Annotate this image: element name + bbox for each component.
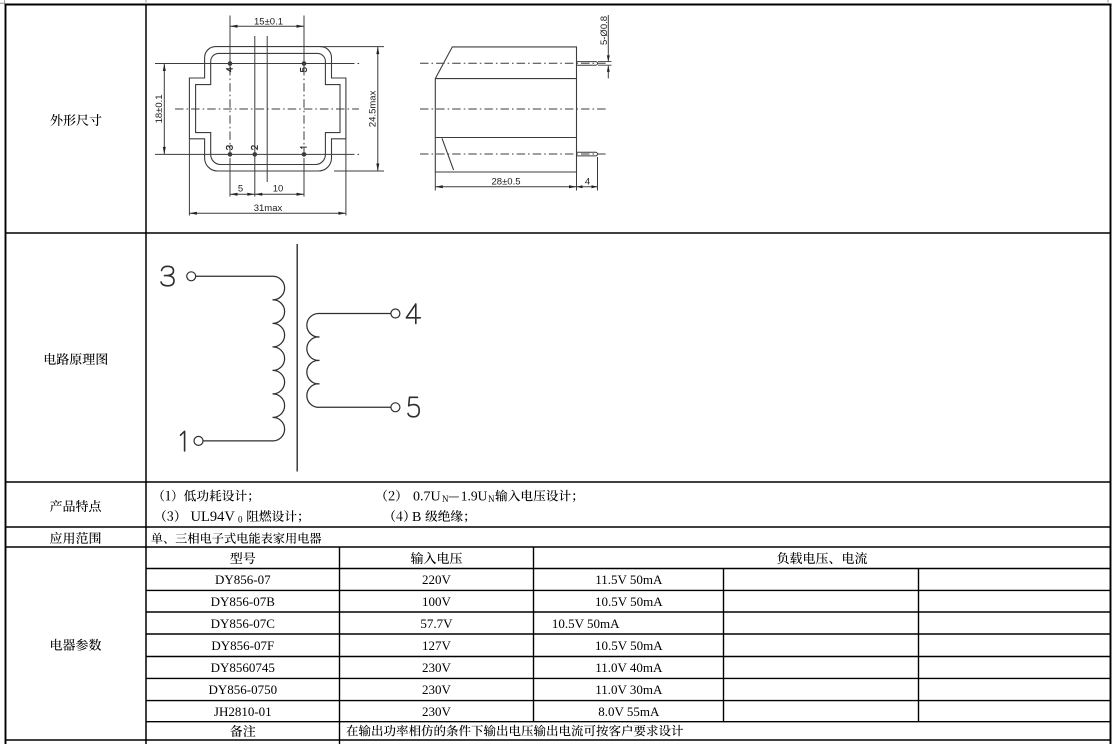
svg-text:127V: 127V xyxy=(422,638,452,653)
svg-text:220V: 220V xyxy=(422,572,452,587)
svg-text:31max: 31max xyxy=(254,203,283,214)
svg-text:DY856-07F: DY856-07F xyxy=(211,638,274,653)
svg-text:DY856-07: DY856-07 xyxy=(215,572,271,587)
svg-text:1.9U: 1.9U xyxy=(461,488,488,503)
svg-text:100V: 100V xyxy=(422,594,452,609)
svg-text:4: 4 xyxy=(585,176,590,187)
svg-text:DY8560745: DY8560745 xyxy=(211,660,275,675)
svg-text:8.0V 55mA: 8.0V 55mA xyxy=(598,704,660,719)
svg-text:0.7U: 0.7U xyxy=(413,489,441,504)
svg-text:0: 0 xyxy=(238,514,243,524)
svg-text:230V: 230V xyxy=(422,704,452,719)
svg-text:5-Ø0.8: 5-Ø0.8 xyxy=(599,16,610,45)
svg-text:10: 10 xyxy=(273,183,284,194)
svg-text:N: N xyxy=(442,494,449,504)
svg-text:UL94V: UL94V xyxy=(191,509,236,525)
svg-text:28±0.5: 28±0.5 xyxy=(492,176,521,187)
svg-text:5: 5 xyxy=(238,183,243,194)
svg-text:DY856-07C: DY856-07C xyxy=(211,616,275,631)
svg-text:B: B xyxy=(412,510,421,525)
svg-text:N: N xyxy=(488,494,495,504)
svg-text:DY856-07B: DY856-07B xyxy=(211,594,276,609)
svg-text:11.0V 40mA: 11.0V 40mA xyxy=(595,660,663,675)
svg-text:10.5V 50mA: 10.5V 50mA xyxy=(595,594,663,609)
svg-text:11.0V 30mA: 11.0V 30mA xyxy=(595,682,663,697)
svg-text:57.7V: 57.7V xyxy=(420,616,453,631)
svg-text:18±0.1: 18±0.1 xyxy=(154,94,165,123)
svg-text:15±0.1: 15±0.1 xyxy=(254,16,283,27)
svg-text:10.5V 50mA: 10.5V 50mA xyxy=(595,638,663,653)
svg-text:230V: 230V xyxy=(422,682,452,697)
svg-text:230V: 230V xyxy=(422,660,452,675)
svg-text:JH2810-01: JH2810-01 xyxy=(214,704,272,719)
svg-text:DY856-0750: DY856-0750 xyxy=(208,682,277,697)
svg-text:10.5V 50mA: 10.5V 50mA xyxy=(552,616,620,631)
svg-text:24.5max: 24.5max xyxy=(368,90,379,127)
svg-text:11.5V 50mA: 11.5V 50mA xyxy=(595,572,663,587)
